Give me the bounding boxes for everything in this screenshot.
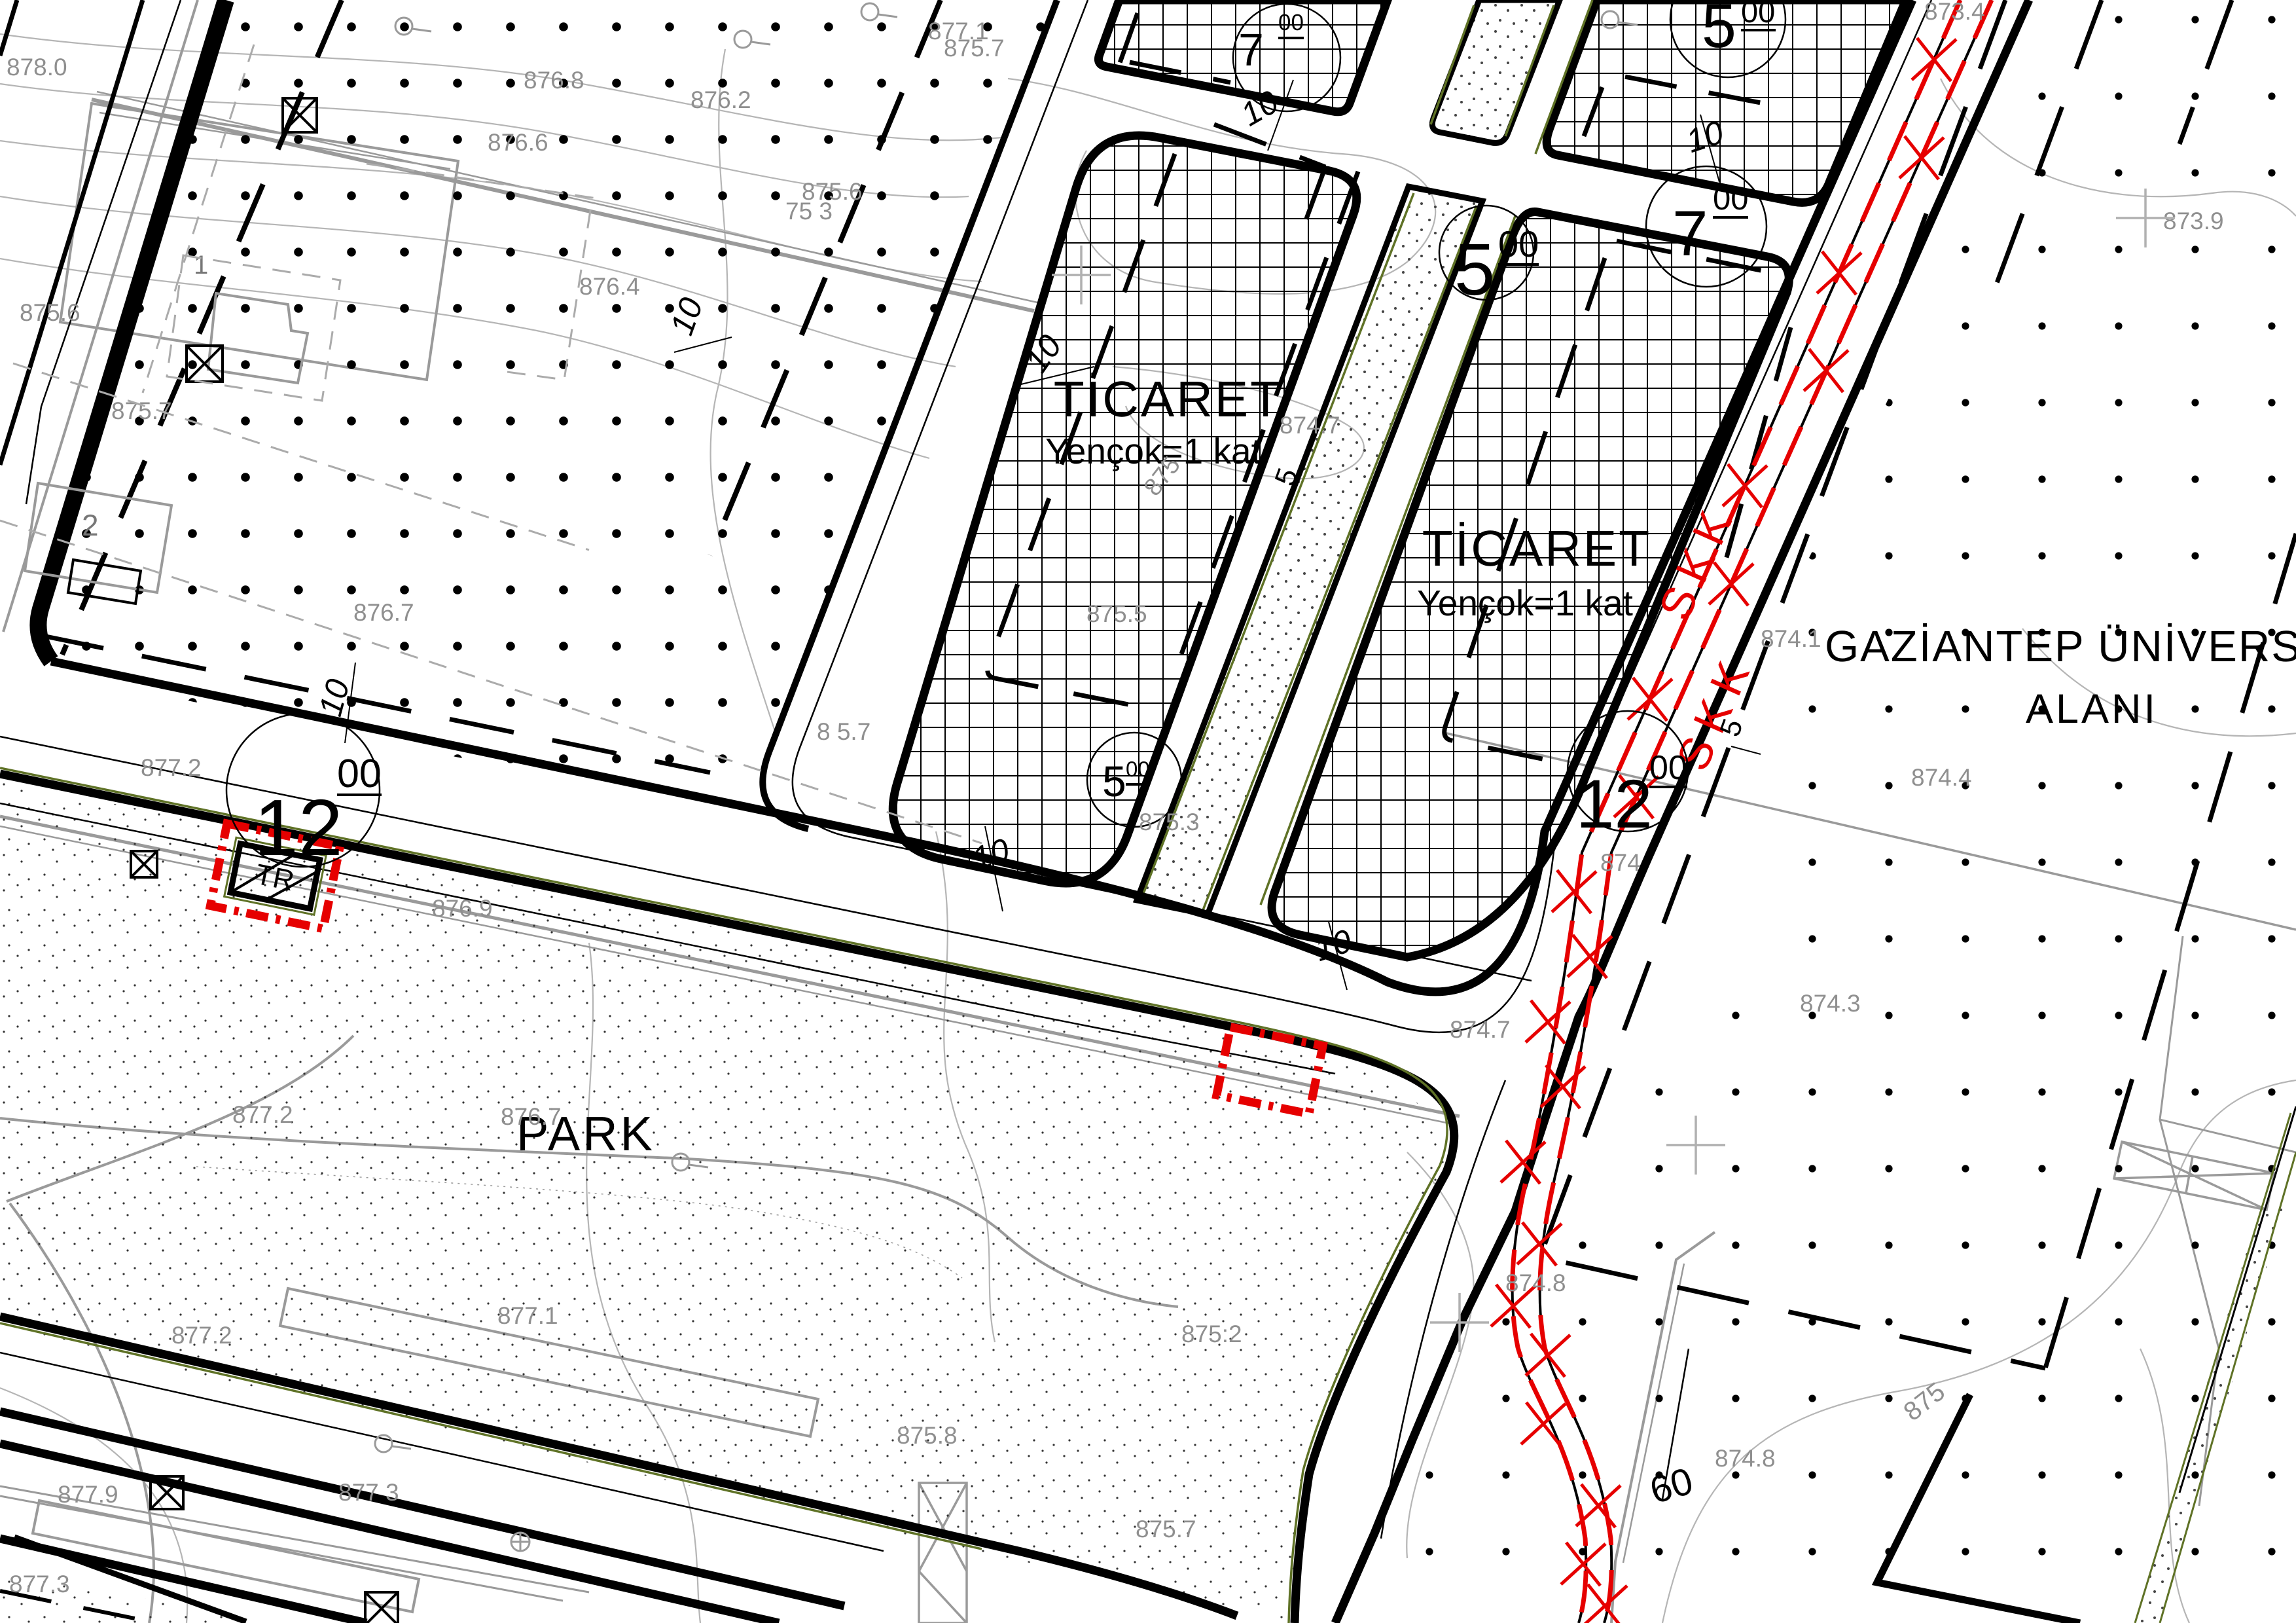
svg-text:1: 1 bbox=[194, 251, 208, 280]
svg-text:877.3: 877.3 bbox=[9, 1571, 70, 1597]
svg-text:875.8: 875.8 bbox=[897, 1422, 958, 1449]
svg-text:878.0: 878.0 bbox=[7, 54, 67, 81]
svg-text:877.2: 877.2 bbox=[171, 1322, 232, 1349]
svg-text:875.6: 875.6 bbox=[20, 299, 81, 326]
svg-text:877.9: 877.9 bbox=[58, 1481, 118, 1508]
svg-text:876.6: 876.6 bbox=[488, 129, 548, 156]
svg-text:874.1: 874.1 bbox=[1761, 625, 1821, 652]
svg-text:874.8: 874.8 bbox=[1505, 1269, 1566, 1296]
svg-text:876.8: 876.8 bbox=[524, 67, 584, 94]
svg-text:874.8: 874.8 bbox=[1715, 1445, 1776, 1472]
svg-text:874.7: 874.7 bbox=[1450, 1016, 1511, 1043]
svg-text:TİCARET: TİCARET bbox=[1422, 520, 1651, 577]
svg-text:876.2: 876.2 bbox=[691, 86, 751, 113]
svg-text:5: 5 bbox=[1702, 0, 1736, 61]
svg-text:873.4: 873.4 bbox=[1924, 0, 1985, 25]
svg-text:875.7: 875.7 bbox=[944, 35, 1005, 62]
svg-text:876.7: 876.7 bbox=[501, 1103, 562, 1130]
svg-text:00: 00 bbox=[1713, 181, 1749, 217]
svg-text:874.4: 874.4 bbox=[1911, 764, 1972, 791]
svg-text:00: 00 bbox=[1278, 10, 1304, 35]
svg-text:8 5.7: 8 5.7 bbox=[817, 718, 870, 745]
svg-text:75 3: 75 3 bbox=[785, 198, 833, 225]
svg-text:875.7: 875.7 bbox=[1136, 1516, 1196, 1542]
svg-text:GAZİANTEP ÜNİVERSİTE: GAZİANTEP ÜNİVERSİTE bbox=[1825, 622, 2296, 671]
svg-text:876.9: 876.9 bbox=[432, 895, 493, 922]
svg-text:874.3: 874.3 bbox=[1800, 990, 1861, 1017]
svg-text:877.1: 877.1 bbox=[497, 1302, 558, 1329]
svg-text:876.4: 876.4 bbox=[579, 273, 640, 300]
svg-text:874: 874 bbox=[1600, 849, 1641, 876]
svg-text:875.3: 875.3 bbox=[1139, 809, 1200, 835]
svg-text:TİCARET: TİCARET bbox=[1054, 371, 1283, 428]
svg-text:00: 00 bbox=[1741, 0, 1775, 29]
svg-text:00: 00 bbox=[1649, 749, 1687, 787]
svg-text:00: 00 bbox=[1126, 757, 1150, 781]
svg-text:877.2: 877.2 bbox=[141, 754, 202, 781]
svg-text:876.7: 876.7 bbox=[353, 599, 414, 626]
svg-text:ALANI: ALANI bbox=[2026, 686, 2158, 732]
svg-text:12: 12 bbox=[1576, 766, 1653, 843]
svg-text:5: 5 bbox=[1102, 757, 1126, 805]
svg-text:00: 00 bbox=[1498, 223, 1539, 264]
svg-text:7: 7 bbox=[1672, 197, 1708, 269]
svg-text:875:2: 875:2 bbox=[1181, 1321, 1242, 1347]
svg-text:2: 2 bbox=[82, 508, 99, 542]
svg-text:877 3: 877 3 bbox=[338, 1479, 399, 1506]
svg-text:873.9: 873.9 bbox=[2163, 208, 2224, 234]
svg-text:7: 7 bbox=[1238, 24, 1264, 75]
svg-text:875.5: 875.5 bbox=[1086, 600, 1147, 627]
svg-text:874.7: 874.7 bbox=[1280, 412, 1340, 439]
svg-text:5: 5 bbox=[1454, 228, 1495, 310]
svg-text:Yençok=1 kat: Yençok=1 kat bbox=[1417, 583, 1633, 623]
svg-text:877.2: 877.2 bbox=[232, 1101, 293, 1128]
svg-text:00: 00 bbox=[337, 751, 382, 795]
svg-text:12: 12 bbox=[254, 783, 343, 872]
